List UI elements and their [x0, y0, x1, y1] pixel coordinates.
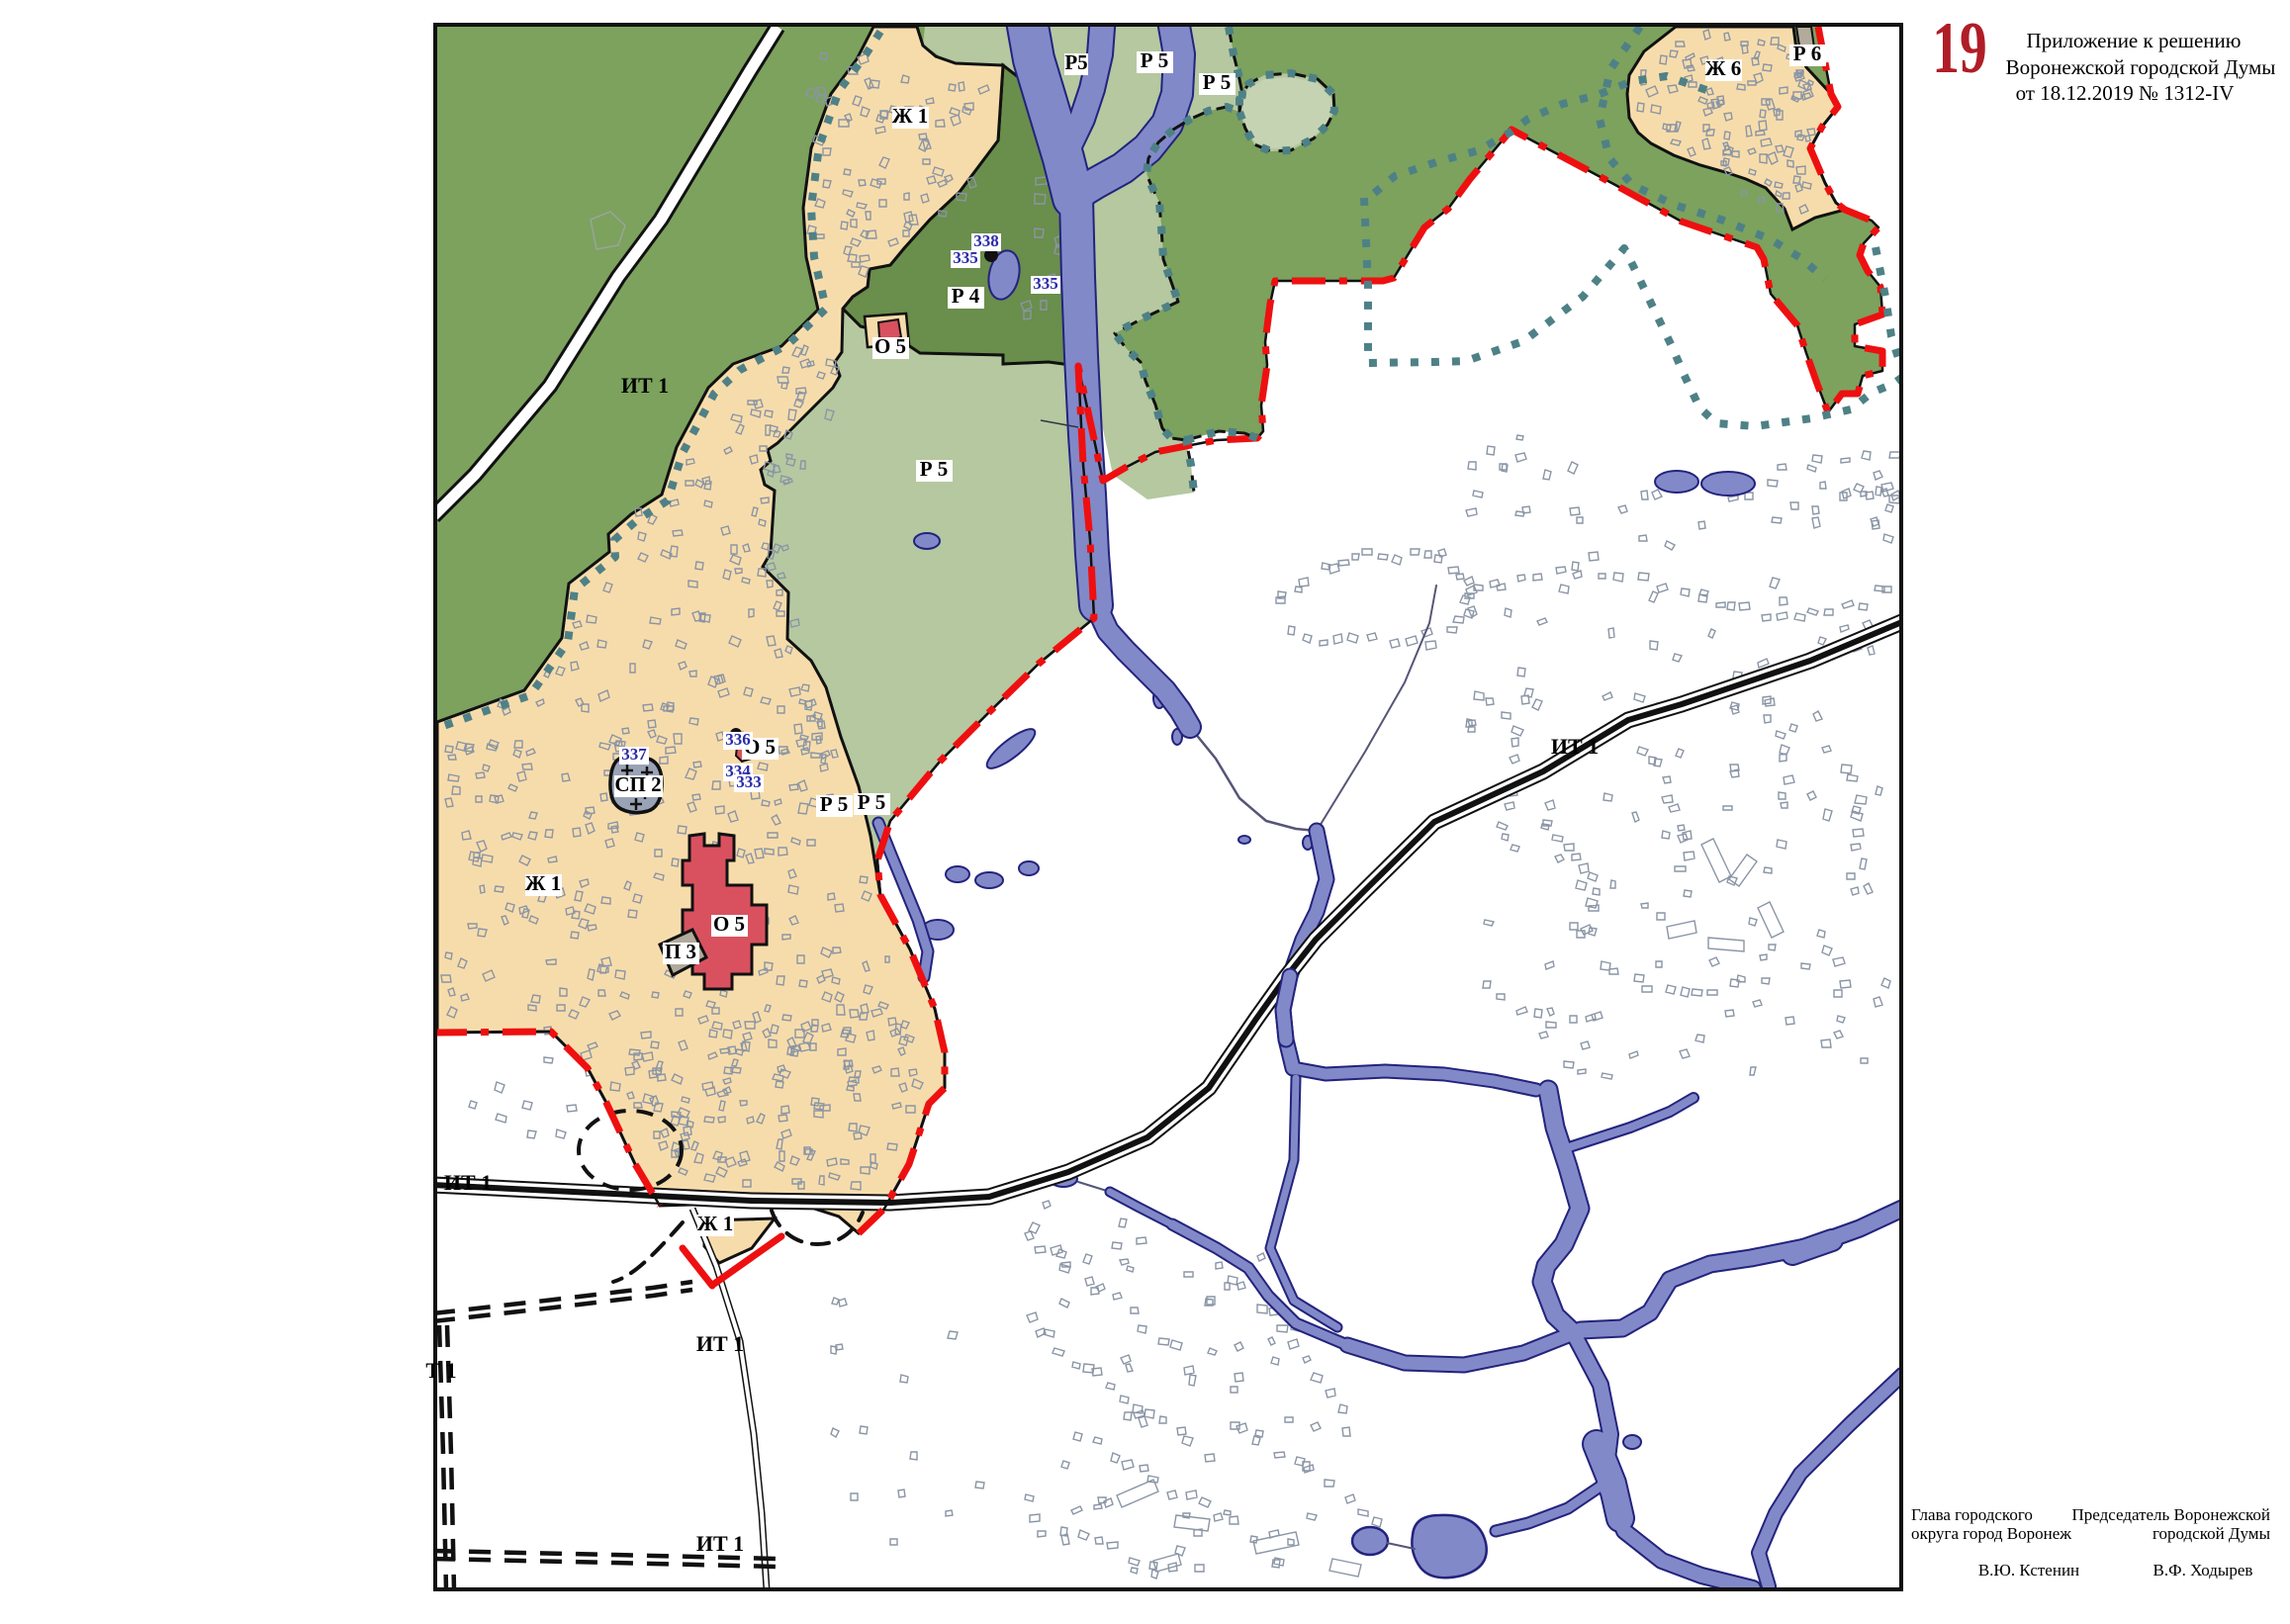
svg-text:335: 335 — [1033, 274, 1058, 293]
svg-text:Р 5: Р 5 — [820, 792, 849, 816]
svg-text:336: 336 — [725, 730, 751, 749]
svg-text:Р 5: Р 5 — [858, 790, 886, 814]
svg-text:Р 5: Р 5 — [920, 457, 949, 481]
svg-text:Председатель Воронежской: Председатель Воронежской — [2072, 1505, 2271, 1524]
svg-text:О 5: О 5 — [713, 912, 745, 936]
svg-text:ИТ 1: ИТ 1 — [696, 1331, 744, 1356]
svg-text:городской Думы: городской Думы — [2153, 1524, 2271, 1543]
svg-text:Р 4: Р 4 — [952, 284, 980, 308]
svg-text:О 5: О 5 — [874, 334, 906, 358]
svg-text:Р5: Р5 — [1064, 50, 1087, 74]
svg-text:ИТ 1: ИТ 1 — [444, 1170, 492, 1195]
svg-text:Р 5: Р 5 — [1203, 70, 1232, 94]
svg-text:Воронежской городской Думы: Воронежской городской Думы — [2006, 55, 2276, 79]
svg-text:В.Ф. Ходырев: В.Ф. Ходырев — [2153, 1561, 2253, 1579]
svg-text:Приложение к решению: Приложение к решению — [2027, 29, 2242, 52]
svg-text:СП 2: СП 2 — [614, 772, 661, 796]
svg-text:Р 5: Р 5 — [1141, 48, 1169, 72]
svg-text:ИТ 1: ИТ 1 — [621, 373, 669, 398]
svg-text:ИТ 1: ИТ 1 — [696, 1531, 744, 1556]
svg-text:П 3: П 3 — [665, 940, 696, 963]
svg-text:Ж 1: Ж 1 — [525, 871, 562, 895]
svg-text:333: 333 — [736, 772, 762, 791]
svg-text:Ж 6: Ж 6 — [1705, 56, 1742, 80]
svg-text:ИТ 1: ИТ 1 — [1551, 734, 1599, 759]
svg-text:335: 335 — [953, 248, 978, 267]
svg-text:от 18.12.2019 № 1312-IV: от 18.12.2019 № 1312-IV — [2016, 81, 2235, 105]
svg-text:337: 337 — [621, 745, 647, 764]
svg-text:округа город Воронеж: округа город Воронеж — [1911, 1524, 2071, 1543]
svg-text:19: 19 — [1932, 9, 1986, 89]
svg-text:Ж 1: Ж 1 — [892, 104, 929, 128]
svg-text:Р 6: Р 6 — [1793, 42, 1822, 65]
svg-text:В.Ю. Кстенин: В.Ю. Кстенин — [1978, 1561, 2079, 1579]
svg-text:Глава городского: Глава городского — [1911, 1505, 2033, 1524]
svg-text:Ж 1: Ж 1 — [697, 1212, 734, 1235]
svg-text:Т 1: Т 1 — [425, 1358, 456, 1383]
